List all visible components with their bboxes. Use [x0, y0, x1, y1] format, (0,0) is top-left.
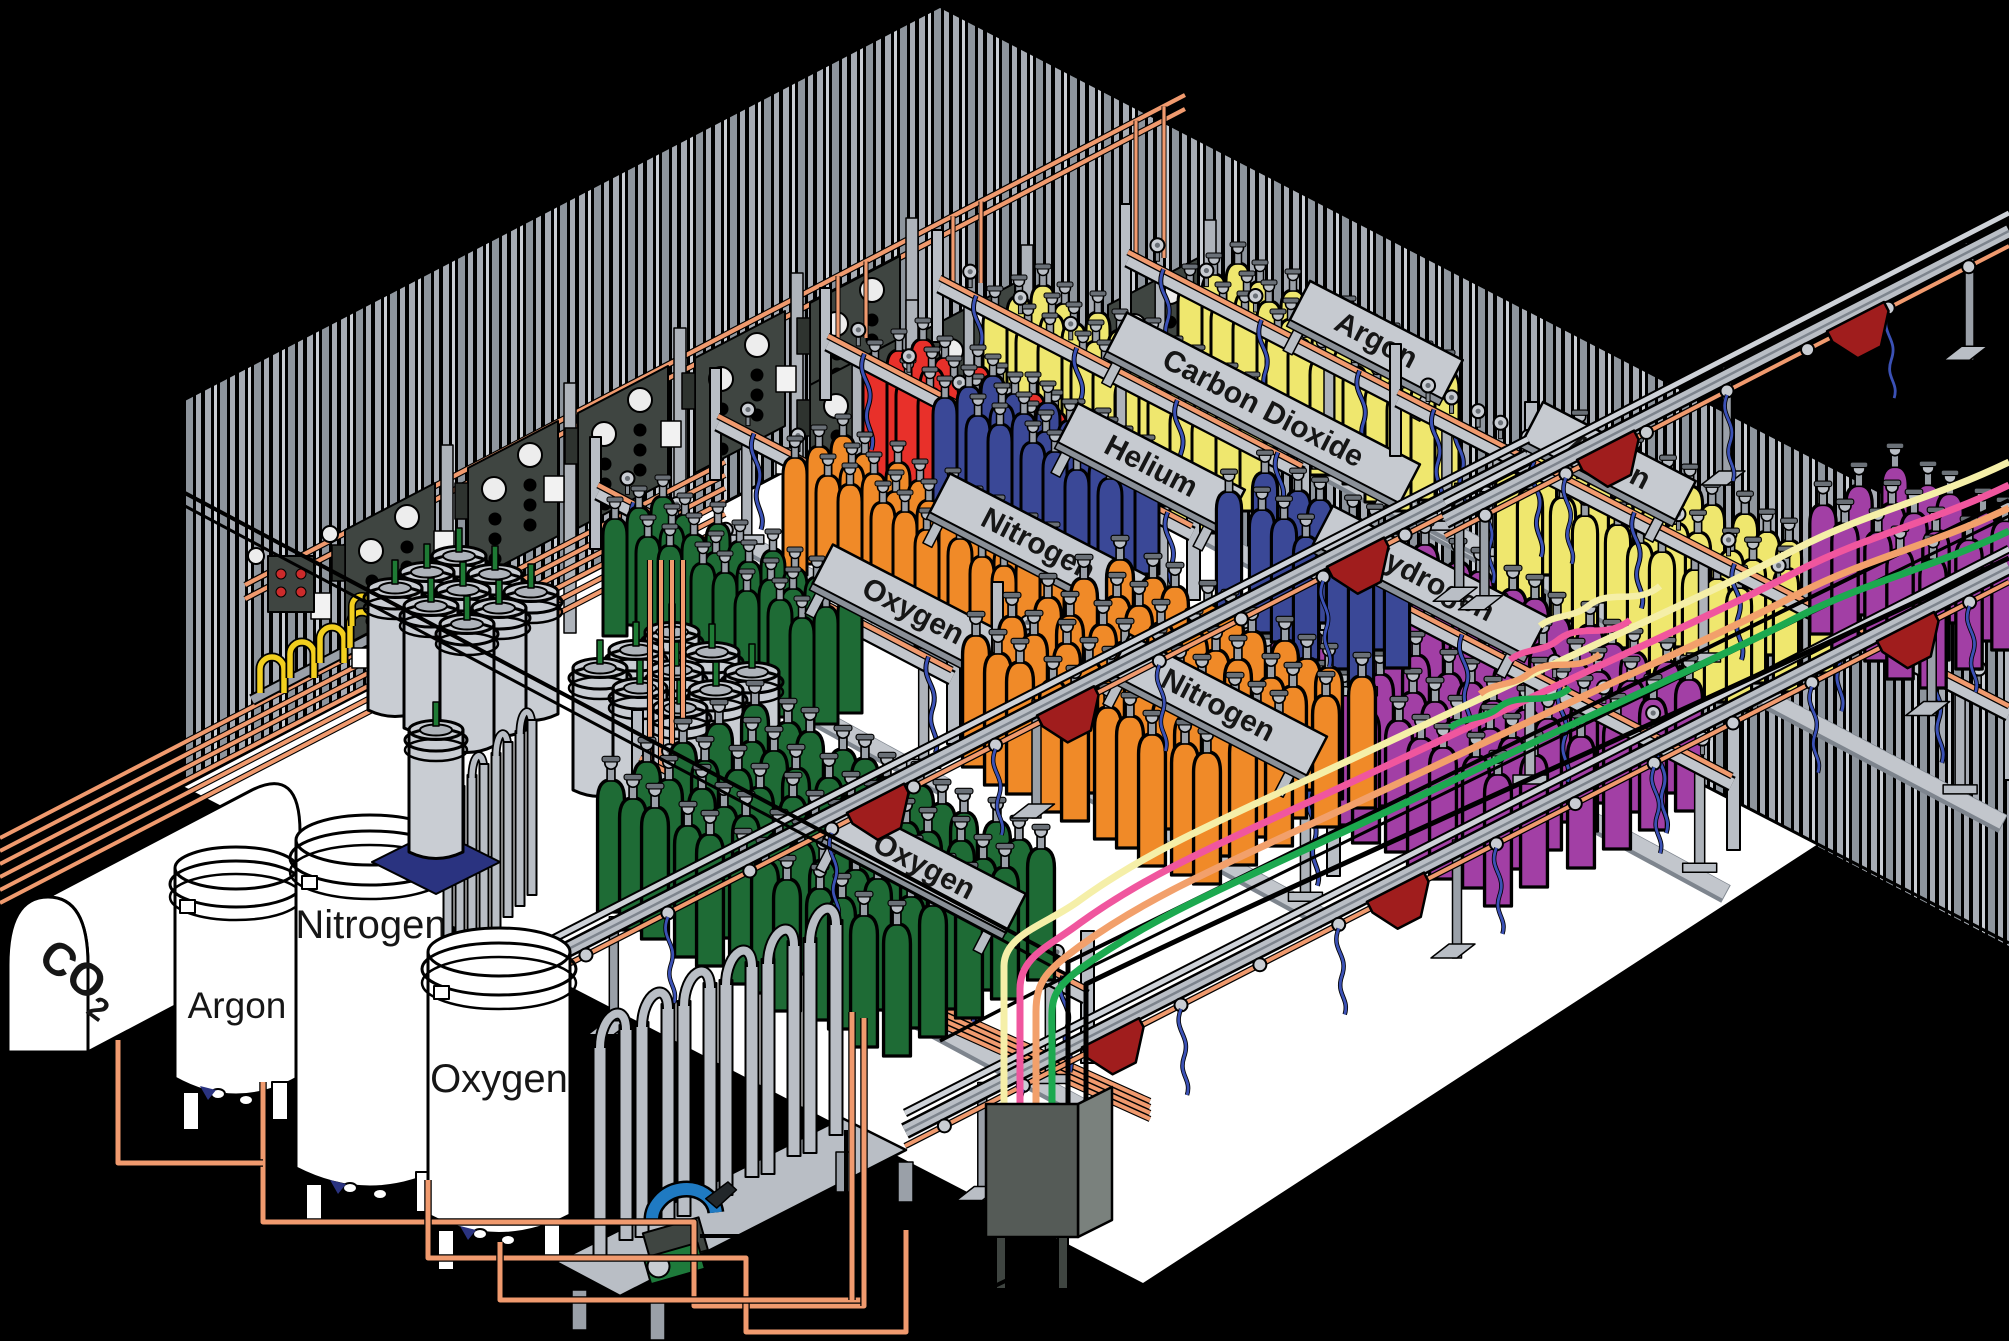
gas-filling-plant-illustration: Oxygen Nitrogen Helium Carbon Dioxide Ar…	[0, 0, 2009, 1341]
argon-tank-label: Argon	[188, 985, 287, 1026]
argon-storage-tank: Argon	[170, 847, 302, 1136]
nitrogen-tank-label: Nitrogen	[295, 903, 446, 947]
oxygen-tank-label: Oxygen	[430, 1057, 568, 1101]
